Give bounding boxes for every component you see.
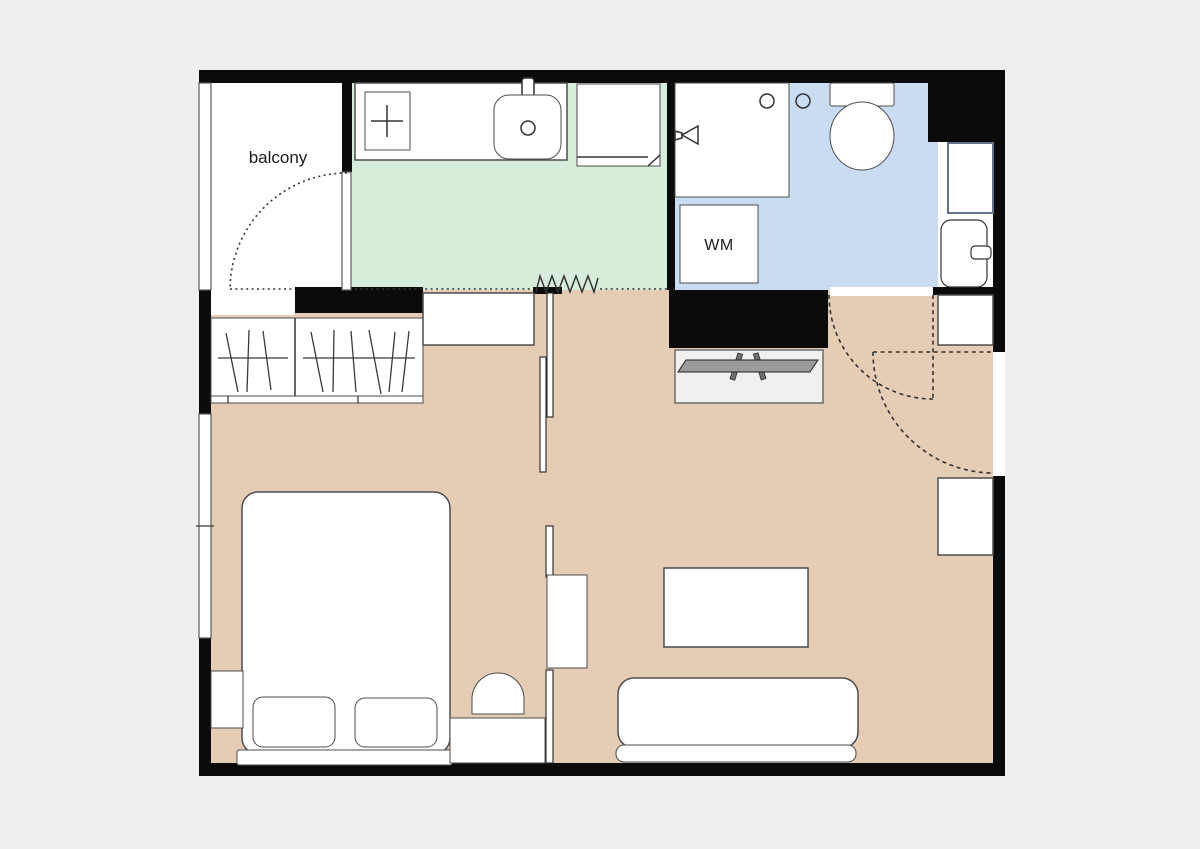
wardrobe: [211, 318, 423, 403]
partition-desk: [547, 575, 587, 668]
wall-wardrobe-top: [295, 287, 423, 313]
bathroom-shelf-cabinet: [948, 143, 993, 213]
wall-left-middle: [199, 290, 211, 414]
toilet: [830, 83, 894, 170]
sideboard: [423, 293, 534, 345]
water-heater-handle: [971, 246, 991, 259]
sliding-door-panel-2: [540, 357, 546, 472]
bed-pillow-left: [253, 697, 335, 747]
fridge: [577, 84, 660, 166]
coffee-table: [664, 568, 808, 647]
wall-corner-block: [928, 70, 1005, 142]
nightstand: [211, 671, 243, 728]
hall-cabinet-lower: [938, 478, 993, 555]
balcony-label: balcony: [249, 148, 308, 167]
wall-kitchen-bathroom-divider: [667, 83, 675, 290]
balcony-railing-window: [199, 83, 211, 290]
sink-basin: [494, 95, 561, 159]
wardrobe-front-strip: [211, 396, 423, 403]
wall-left-lower: [199, 638, 211, 770]
tv-unit: [675, 350, 823, 403]
washing-machine-label: WM: [704, 237, 733, 254]
hall-cabinet-upper: [938, 295, 993, 345]
sofa: [616, 678, 858, 762]
wall-top: [199, 70, 1005, 83]
entrance-doorway: [993, 352, 1005, 476]
dressing-table-top: [450, 718, 545, 763]
double-bed: [237, 492, 452, 765]
toilet-bowl: [830, 102, 894, 170]
tv-lowboard: [675, 350, 823, 403]
water-heater: [941, 220, 991, 287]
floorplan-canvas: balcony: [0, 0, 1200, 849]
sliding-door-panel-1: [547, 293, 553, 417]
sliding-door-panel-4: [546, 670, 553, 763]
sofa-body: [618, 678, 858, 748]
tv-screen: [678, 360, 818, 372]
balcony-door-leaf: [342, 172, 351, 290]
sliding-door-panel-3: [546, 526, 553, 577]
floorplan-drawing: balcony: [0, 0, 1200, 849]
stove-icon: [365, 92, 410, 150]
wall-balcony-divider: [342, 83, 352, 172]
wardrobe-body: [211, 318, 423, 396]
bathroom-doorway: [830, 287, 933, 296]
sofa-back-cushion: [616, 745, 856, 762]
wall-right-lower: [993, 476, 1005, 766]
bed-headboard: [237, 750, 452, 765]
washing-machine: WM: [680, 205, 758, 283]
fridge-body: [577, 84, 660, 166]
balcony-floor: [211, 83, 342, 290]
wall-bathroom-right-stub: [933, 287, 993, 295]
balcony-floor-lower: [211, 287, 295, 315]
wall-bathroom-block: [669, 290, 828, 348]
bed-pillow-right: [355, 698, 437, 747]
